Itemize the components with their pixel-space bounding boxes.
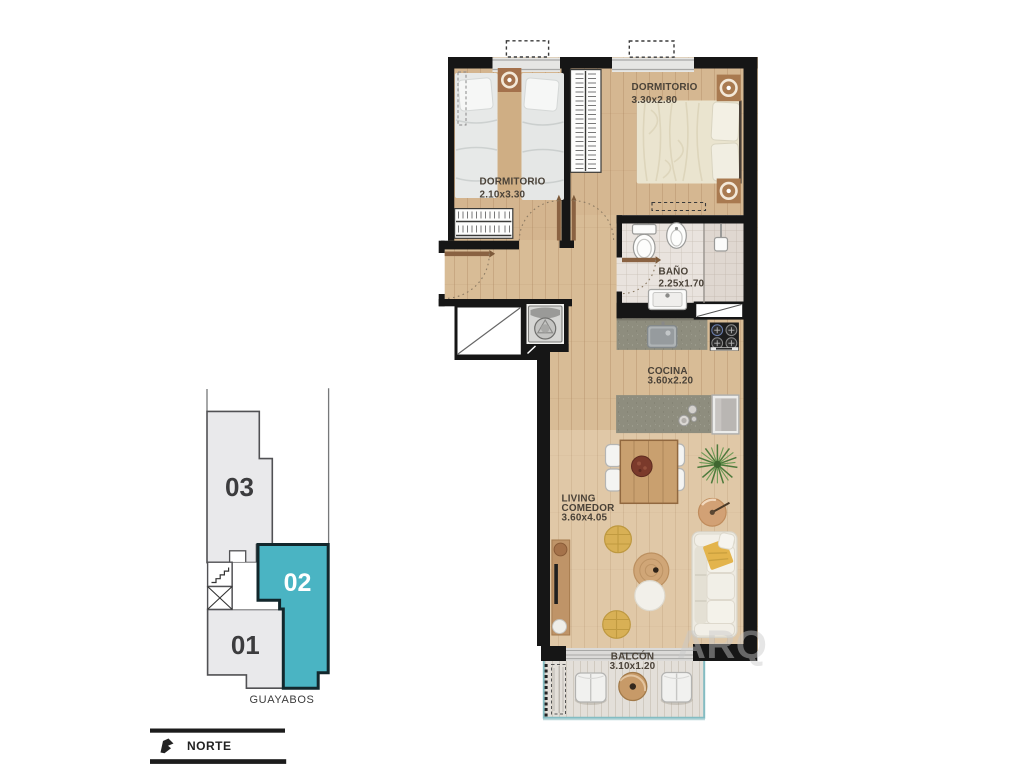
svg-text:BAÑO: BAÑO xyxy=(659,267,689,278)
svg-text:DORMITORIO: DORMITORIO xyxy=(632,82,698,93)
svg-text:02: 02 xyxy=(284,569,312,597)
svg-text:2.10x3.30: 2.10x3.30 xyxy=(480,190,526,201)
svg-text:DORMITORIO: DORMITORIO xyxy=(480,177,546,188)
svg-text:01: 01 xyxy=(231,630,260,660)
svg-text:GUAYABOS: GUAYABOS xyxy=(250,694,315,706)
svg-text:3.60x2.20: 3.60x2.20 xyxy=(648,376,694,387)
svg-text:ARQ: ARQ xyxy=(677,623,767,667)
svg-text:NORTE: NORTE xyxy=(187,739,232,753)
svg-text:2.25x1.70: 2.25x1.70 xyxy=(659,279,705,290)
svg-text:3.60x4.05: 3.60x4.05 xyxy=(562,513,608,524)
svg-text:3.30x2.80: 3.30x2.80 xyxy=(632,95,678,106)
svg-text:3.10x1.20: 3.10x1.20 xyxy=(610,661,656,672)
svg-text:03: 03 xyxy=(225,472,254,502)
